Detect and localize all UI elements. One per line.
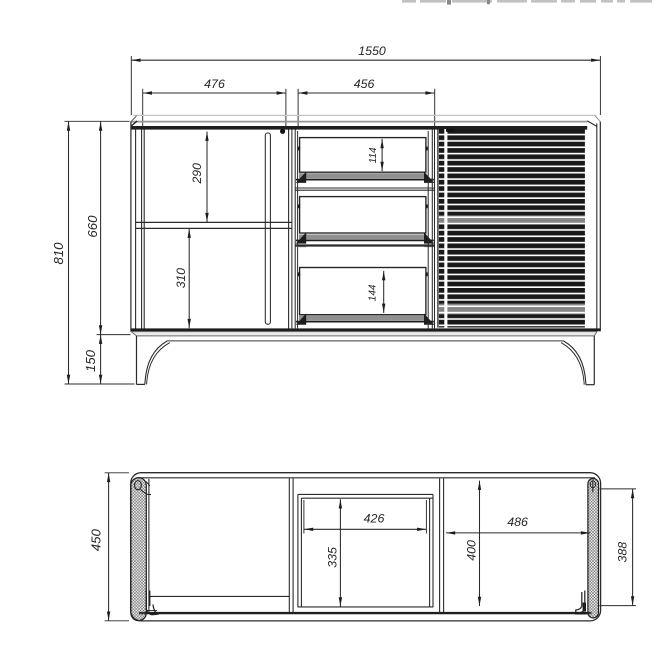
svg-text:450: 450 <box>88 529 103 552</box>
svg-text:476: 476 <box>204 77 225 91</box>
svg-text:660: 660 <box>85 215 100 238</box>
svg-text:1550: 1550 <box>358 44 386 58</box>
svg-text:290: 290 <box>190 163 204 185</box>
svg-text:810: 810 <box>51 242 66 265</box>
svg-text:150: 150 <box>83 349 98 372</box>
svg-text:426: 426 <box>364 512 385 526</box>
svg-text:388: 388 <box>615 542 629 563</box>
svg-text:335: 335 <box>325 547 339 568</box>
svg-text:310: 310 <box>174 268 188 289</box>
svg-text:144: 144 <box>368 284 379 301</box>
svg-text:114: 114 <box>368 147 379 163</box>
svg-text:456: 456 <box>354 77 375 91</box>
svg-text:486: 486 <box>507 515 528 529</box>
svg-text:400: 400 <box>465 540 479 561</box>
